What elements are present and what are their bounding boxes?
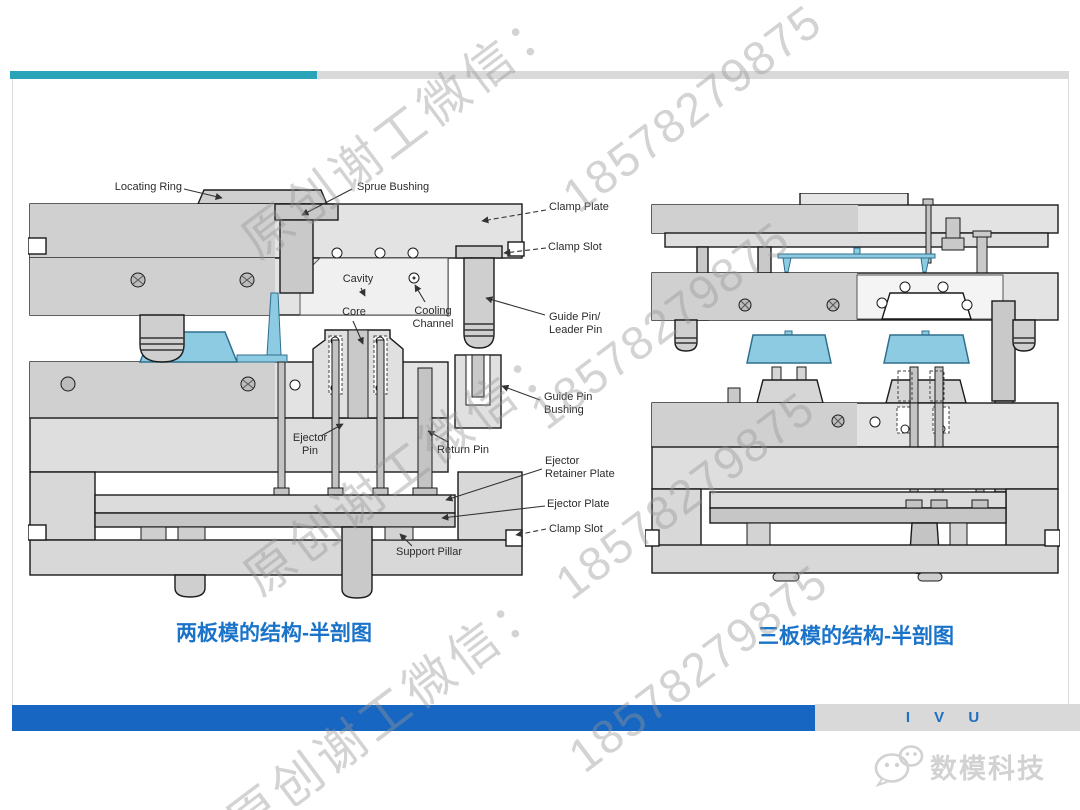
top-bar bbox=[317, 71, 1069, 79]
label-locating-ring: Locating Ring bbox=[115, 181, 182, 194]
label-clamp-plate: Clamp Plate bbox=[549, 201, 609, 214]
label-guide-pin-bushing: Guide Pin Bushing bbox=[544, 391, 592, 417]
label-ejector-plate: Ejector Plate bbox=[547, 498, 609, 511]
vendor-logo-text: 数模科技 bbox=[930, 747, 1046, 786]
vendor-logo: 数模科技 bbox=[868, 742, 1046, 790]
wechat-icon bbox=[868, 742, 930, 790]
brand-ivu: I V U bbox=[906, 709, 989, 726]
bottom-bar-brand: I V U bbox=[815, 704, 1080, 731]
label-support-pillar: Support Pillar bbox=[396, 546, 462, 559]
label-guide-pin: Guide Pin/ Leader Pin bbox=[549, 311, 602, 337]
label-clamp-slot-bottom: Clamp Slot bbox=[549, 523, 603, 536]
two-plate-mold-diagram bbox=[28, 188, 620, 600]
label-cavity: Cavity bbox=[343, 273, 374, 286]
three-plate-mold-diagram bbox=[645, 193, 1060, 583]
label-core: Core bbox=[342, 306, 366, 319]
caption-three-plate-mold: 三板模的结构-半剖图 bbox=[758, 620, 954, 650]
caption-two-plate-mold: 两板模的结构-半剖图 bbox=[176, 617, 372, 647]
label-ejector-pin: Ejector Pin bbox=[293, 432, 327, 458]
bottom-bar-accent bbox=[12, 705, 815, 731]
top-bar-accent bbox=[10, 71, 317, 79]
label-sprue-bushing: Sprue Bushing bbox=[357, 181, 429, 194]
label-clamp-slot-top: Clamp Slot bbox=[548, 241, 602, 254]
label-return-pin: Return Pin bbox=[437, 444, 489, 457]
slide: 原创谢工微信： 18578279875 原创谢工微信： 18578279875 … bbox=[0, 0, 1080, 810]
label-cooling-channel: Cooling Channel bbox=[413, 305, 454, 331]
label-ejector-retainer-plate: Ejector Retainer Plate bbox=[545, 455, 615, 481]
